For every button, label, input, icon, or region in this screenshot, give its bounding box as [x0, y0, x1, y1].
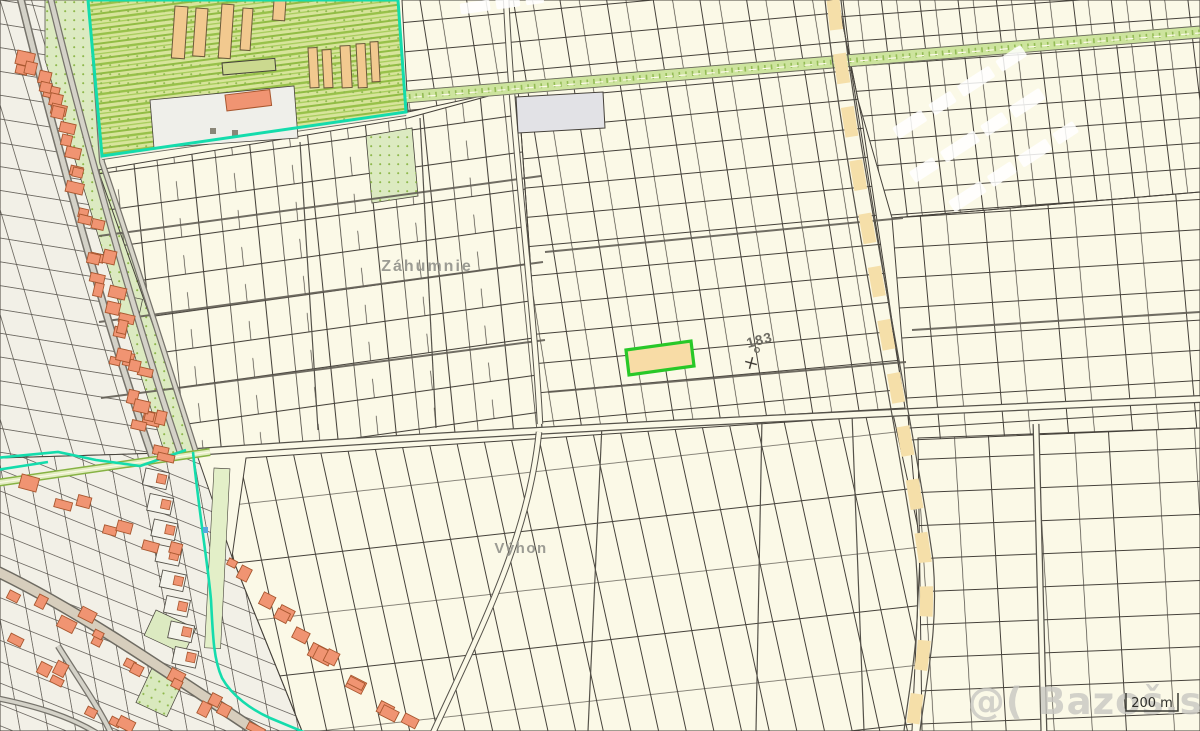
- building: [51, 106, 65, 120]
- house-building: [173, 576, 184, 587]
- building: [128, 359, 141, 372]
- house-building: [156, 474, 167, 485]
- building: [116, 348, 132, 363]
- orchard-shed: [210, 128, 216, 134]
- building: [86, 253, 100, 266]
- building: [105, 301, 121, 316]
- cadastral-map-canvas[interactable]: 183 Záhumnie Výhon @( Bazoš.sk 200 m: [0, 0, 1200, 731]
- blue-marker: [203, 527, 208, 533]
- scale-bar: 200 m: [1126, 693, 1178, 711]
- building: [102, 249, 117, 265]
- building: [60, 134, 72, 147]
- building: [72, 167, 84, 178]
- house-building: [160, 499, 171, 510]
- house-building: [181, 627, 192, 638]
- scale-bar-label: 200 m: [1131, 696, 1173, 711]
- house-building: [186, 652, 197, 663]
- area-label-zahumnie: Záhumnie: [381, 258, 473, 275]
- building: [169, 542, 183, 555]
- area-label-vyhon: Výhon: [494, 540, 547, 557]
- map-screenshot: 183 Záhumnie Výhon @( Bazoš.sk 200 m: [0, 0, 1200, 731]
- house-building: [177, 601, 188, 612]
- building: [24, 61, 38, 75]
- house-building: [165, 525, 176, 536]
- gray-parcel: [516, 92, 605, 133]
- building: [39, 81, 52, 93]
